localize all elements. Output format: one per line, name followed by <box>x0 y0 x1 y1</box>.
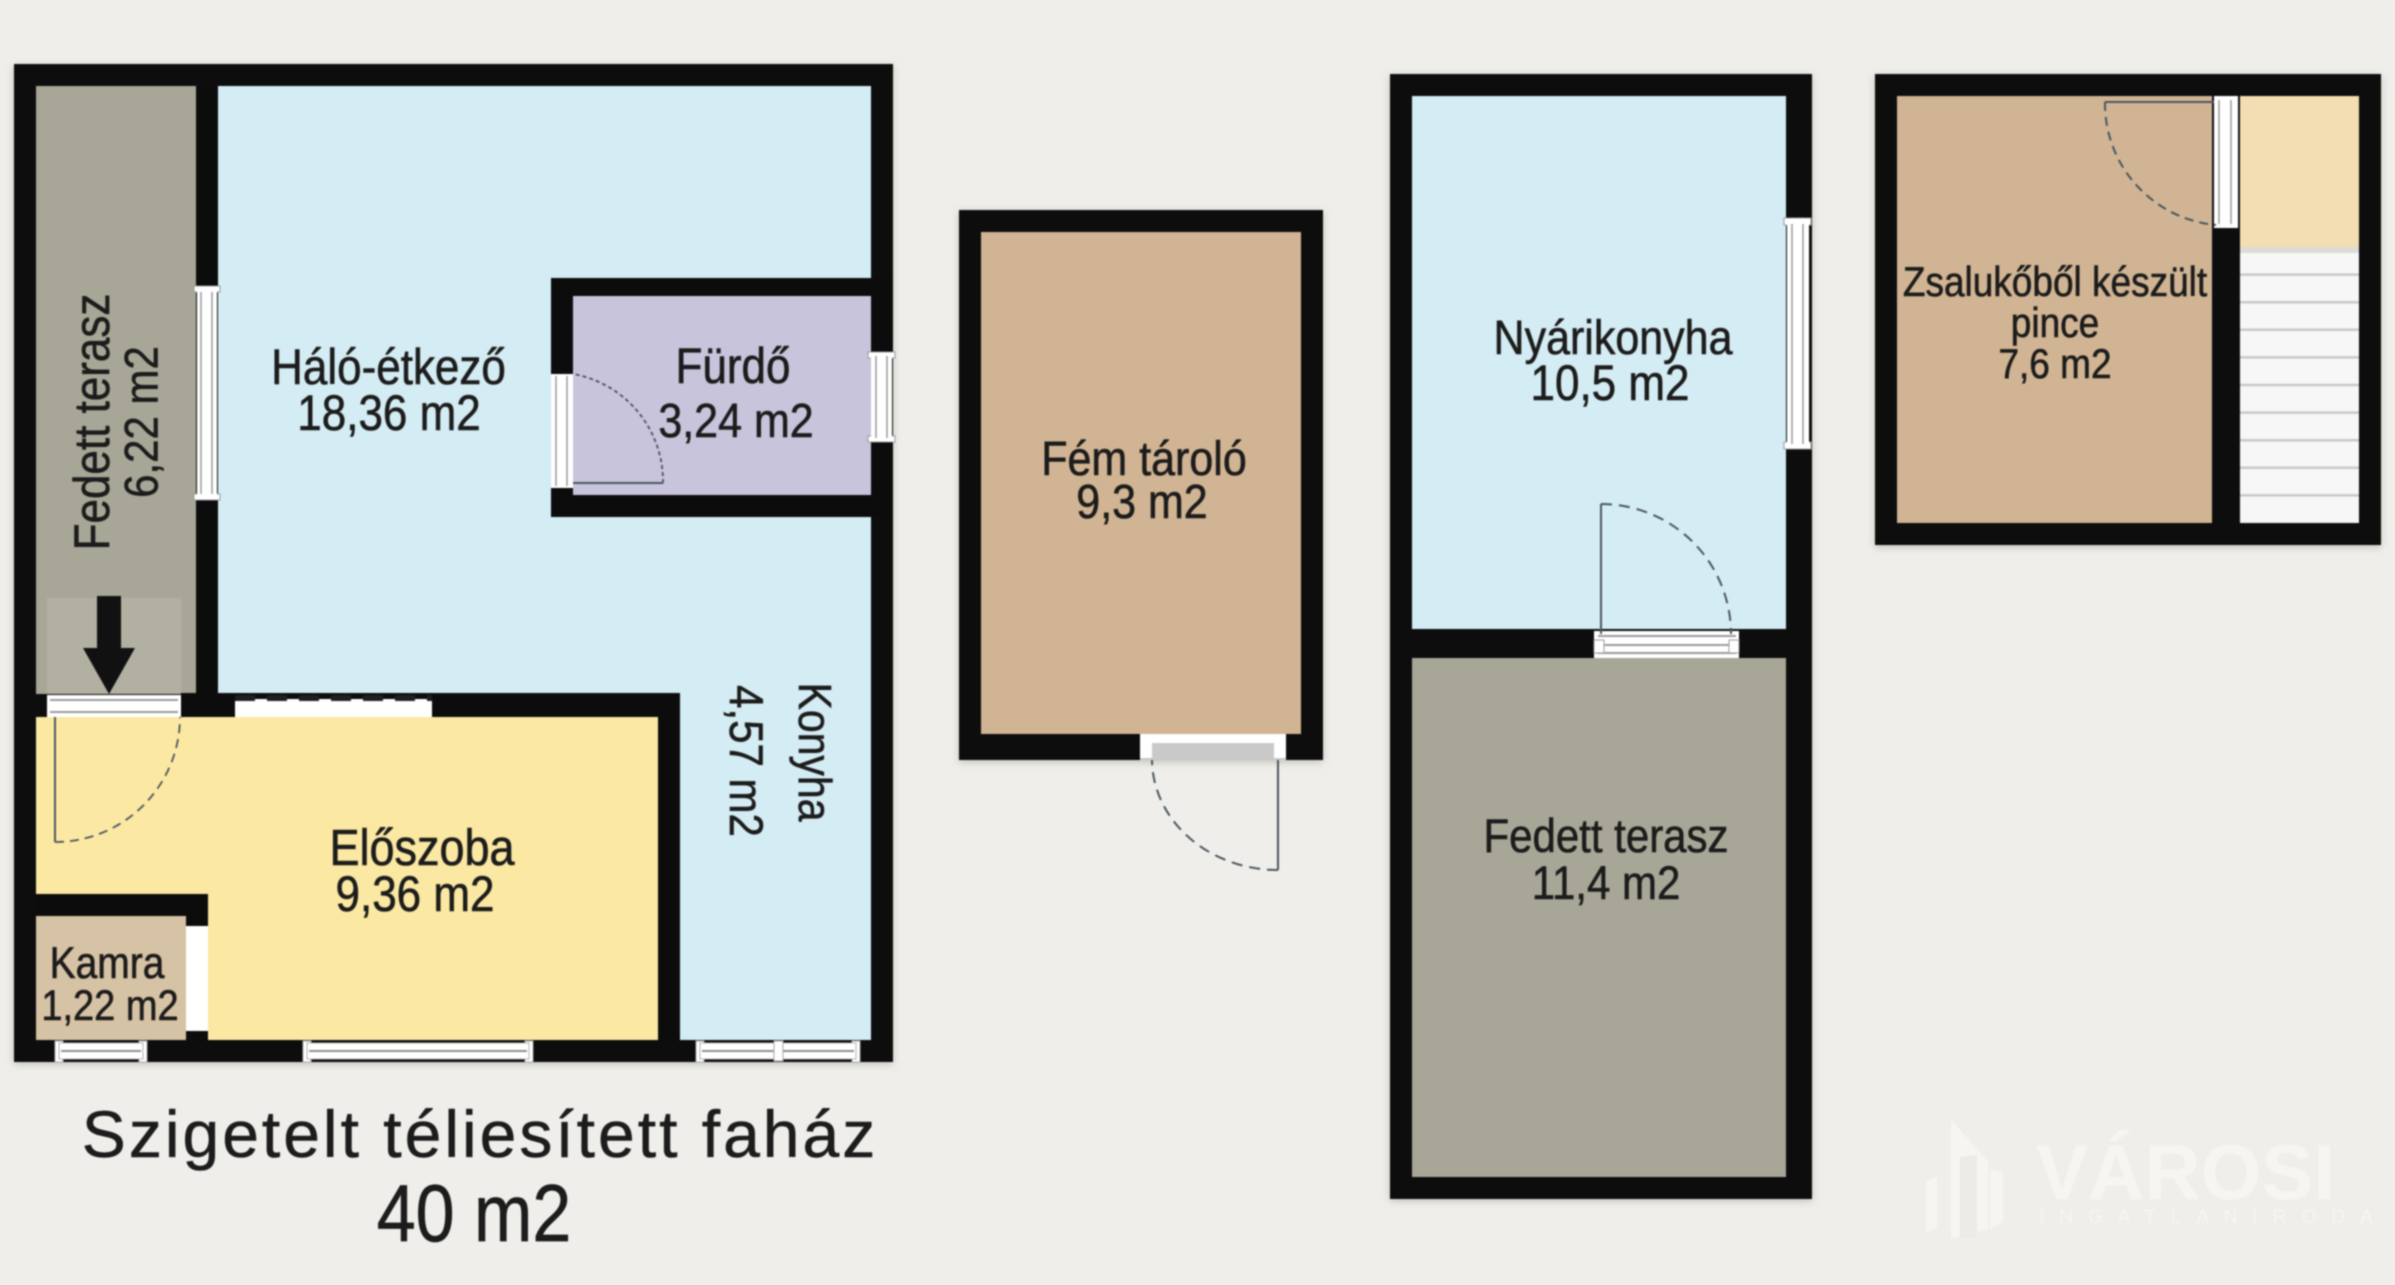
svg-text:9,36 m2: 9,36 m2 <box>336 867 495 922</box>
svg-text:11,4 m2: 11,4 m2 <box>1532 857 1681 910</box>
svg-text:3,24 m2: 3,24 m2 <box>658 393 813 448</box>
svg-text:40 m2: 40 m2 <box>377 1168 572 1258</box>
svg-text:Fedett terasz: Fedett terasz <box>64 294 119 551</box>
svg-text:7,6 m2: 7,6 m2 <box>1998 341 2111 388</box>
svg-text:Konyha: Konyha <box>788 682 840 822</box>
svg-text:6,22 m2: 6,22 m2 <box>115 346 168 498</box>
svg-text:1,22 m2: 1,22 m2 <box>41 981 178 1030</box>
svg-text:Zsalukőből készült: Zsalukőből készült <box>1903 259 2207 306</box>
svg-text:4,57 m2: 4,57 m2 <box>719 685 772 837</box>
svg-text:Fürdő: Fürdő <box>676 339 791 394</box>
svg-text:Fedett terasz: Fedett terasz <box>1483 810 1728 863</box>
svg-text:Szigetelt téliesített faház: Szigetelt téliesített faház <box>82 1097 878 1171</box>
svg-text:9,3 m2: 9,3 m2 <box>1076 474 1207 529</box>
svg-text:VÁROSI: VÁROSI <box>2036 1128 2335 1216</box>
svg-text:18,36 m2: 18,36 m2 <box>297 386 480 441</box>
svg-text:pince: pince <box>2011 300 2099 347</box>
svg-text:10,5 m2: 10,5 m2 <box>1531 356 1690 411</box>
svg-text:INGATLANIRODA: INGATLANIRODA <box>2039 1207 2388 1228</box>
